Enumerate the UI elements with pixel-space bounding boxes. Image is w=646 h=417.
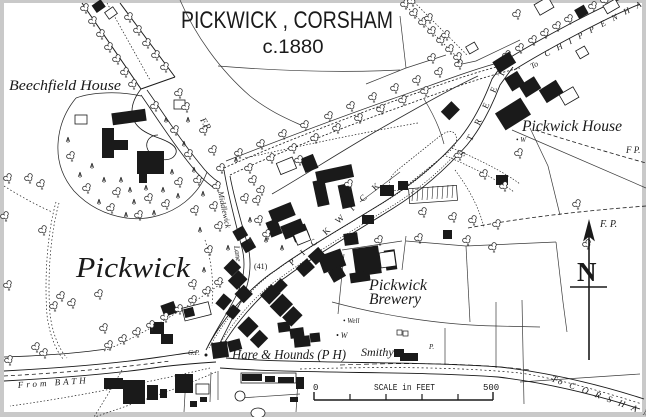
svg-text:• Well: • Well <box>343 317 359 325</box>
svg-text:c.1880: c.1880 <box>263 37 324 58</box>
svg-text:G.P.: G.P. <box>188 349 200 357</box>
svg-text:F P.: F P. <box>625 145 640 155</box>
svg-text:PICKWICK , CORSHAM: PICKWICK , CORSHAM <box>181 7 393 34</box>
svg-text:N: N <box>577 257 597 287</box>
svg-text:SCALE in FEET: SCALE in FEET <box>374 383 436 393</box>
svg-text:Beechfield House: Beechfield House <box>9 78 121 94</box>
svg-text:Hare & Hounds (P H): Hare & Hounds (P H) <box>231 348 346 363</box>
svg-text:Pickwick House: Pickwick House <box>521 118 622 135</box>
svg-text:F. P.: F. P. <box>599 219 617 230</box>
svg-text:0: 0 <box>313 383 318 393</box>
svg-text:• W: • W <box>516 136 527 144</box>
svg-text:• W: • W <box>336 331 349 340</box>
svg-text:Brewery: Brewery <box>369 291 422 308</box>
svg-text:(41): (41) <box>254 262 268 271</box>
svg-text:Pickwick: Pickwick <box>75 253 191 284</box>
svg-text:500: 500 <box>483 383 499 393</box>
svg-text:P.: P. <box>428 343 434 351</box>
svg-text:Smithy: Smithy <box>361 345 394 359</box>
